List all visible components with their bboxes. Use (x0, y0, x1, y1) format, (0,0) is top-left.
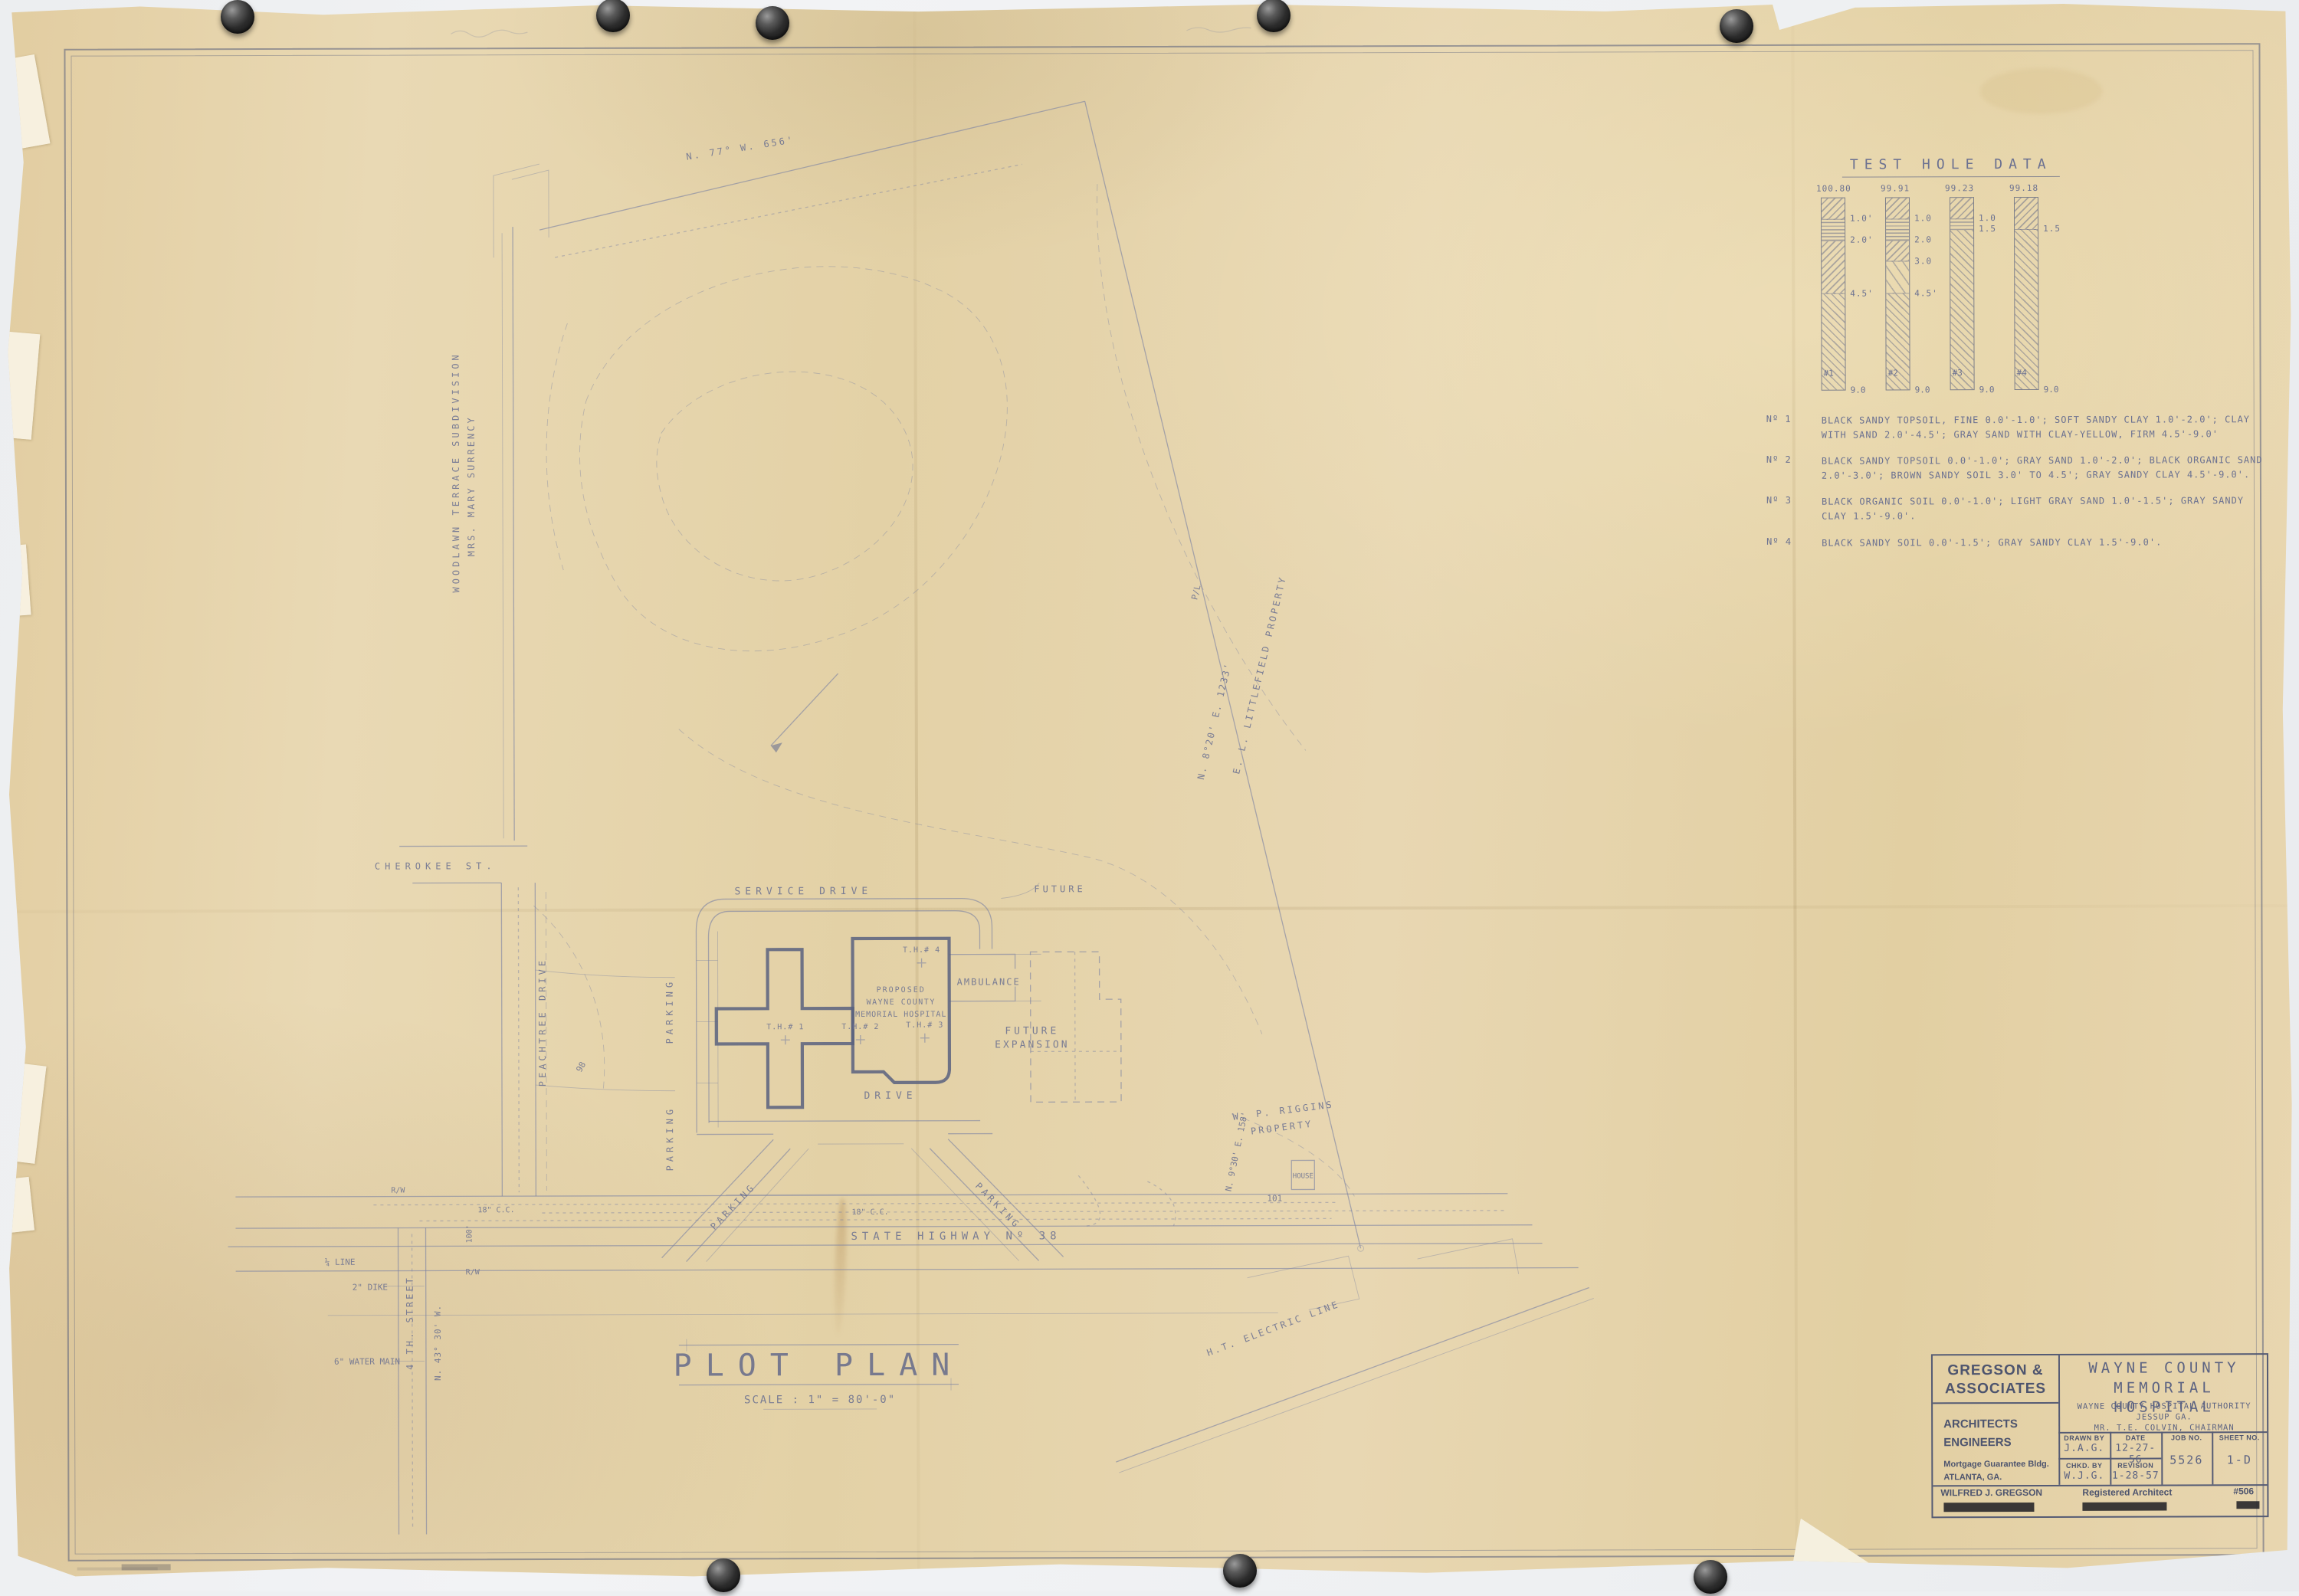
soil-stratum (1886, 262, 1909, 294)
test-hole-2-label: T.H.# 2 (841, 1023, 879, 1031)
bore-log-columns: 100.801.0'2.0'4.5'9.0#199.911.02.03.04.5… (1821, 176, 2272, 391)
parking-label-west-2: PARKING (664, 1106, 675, 1172)
soil-stratum (1950, 198, 1973, 219)
pinboard-background: SERVICE DRIVE FUTURE PROPOSED WAYNE COUN… (0, 0, 2299, 1591)
client-info: WAYNE COUNTY HOSPITAL AUTHORITY JESSUP G… (2058, 1401, 2270, 1434)
surface-elevation-label: 99.18 (2009, 183, 2038, 193)
firm-name: GREGSON & ASSOCIATES (1933, 1362, 2058, 1398)
state-highway-label: STATE HIGHWAY Nº 38 (851, 1230, 1061, 1243)
fourth-street (382, 1227, 426, 1534)
sheet-no-header: SHEET NO. (2212, 1431, 2267, 1441)
ambulance-label: AMBULANCE (957, 976, 1021, 987)
push-pin-icon (221, 0, 254, 34)
depth-mark-label: 1.0 (1979, 213, 1996, 223)
note-text: BLACK SANDY TOPSOIL 0.0'-1.0'; GRAY SAND… (1822, 453, 2266, 483)
quarter-line-label: ¼ LINE (325, 1257, 356, 1267)
soil-stratum (2015, 198, 2038, 230)
parking-label-west-1: PARKING (664, 978, 675, 1044)
firm-name-line1: GREGSON & (1933, 1362, 2058, 1380)
bearing-fourth-label: N. 43° 30' W. (433, 1305, 443, 1381)
test-hole-note: Nº 1BLACK SANDY TOPSOIL, FINE 0.0'-1.0';… (1766, 412, 2272, 442)
job-no-header: JOB NO. (2161, 1431, 2212, 1441)
dike-label: 2" DIKE (353, 1283, 388, 1293)
redacted-registered-title (2082, 1503, 2166, 1511)
future-expansion-label-1: FUTURE (1005, 1025, 1059, 1037)
test-hole-column: 100.801.0'2.0'4.5'9.0#1 (1821, 198, 1846, 391)
note-label: Nº 1 (1766, 414, 1806, 442)
push-pin-icon (1257, 0, 1291, 32)
fourth-street-label: 4 TH. STREET (405, 1276, 415, 1370)
soil-stratum (1886, 198, 1909, 219)
depth-mark-label: 1.0' (1850, 214, 1874, 224)
job-no-value: 5526 (2161, 1453, 2212, 1467)
soil-stratum (1950, 219, 1973, 230)
building-label-3: MEMORIAL HOSPITAL (855, 1011, 946, 1019)
firm-address-line2: ATLANTA, GA. (1943, 1470, 2058, 1483)
depth-mark-label: 1.5 (2043, 224, 2061, 234)
water-main-label: 6" WATER MAIN (334, 1357, 400, 1367)
riggins-label-2: PROPERTY (1250, 1119, 1313, 1137)
push-pin-icon (1223, 1554, 1257, 1588)
blueprint-sheet: SERVICE DRIVE FUTURE PROPOSED WAYNE COUN… (2, 0, 2296, 1585)
redacted-architect-name (1943, 1503, 2034, 1512)
peachtree-drive (501, 883, 675, 1197)
firm-roles: ARCHITECTS ENGINEERS (1943, 1415, 2058, 1452)
service-drive-label: SERVICE DRIVE (734, 886, 872, 897)
bore-log-bar (1950, 197, 1975, 390)
plot-plan-scale: SCALE : 1" = 80'-0" (744, 1394, 896, 1407)
project-name-line1: WAYNE COUNTY (2058, 1358, 2270, 1378)
push-pin-icon (756, 6, 789, 40)
soil-stratum (1886, 219, 1909, 241)
sheet-no-value: 1-D (2212, 1453, 2267, 1467)
woodlawn-label-2: MRS. MARY SURRENCY (466, 415, 477, 556)
bearing-riggins-label: N. 9°30' E. 158' (1224, 1111, 1250, 1192)
building-label-1: PROPOSED (877, 986, 926, 995)
north-arrow (771, 673, 838, 752)
contour-101-label: 101 (1267, 1194, 1282, 1204)
firm-role-architects: ARCHITECTS (1943, 1415, 2058, 1434)
state-highway (228, 1175, 1578, 1316)
parking-label-entry-left: PARKING (708, 1181, 758, 1231)
test-hole-note: Nº 3BLACK ORGANIC SOIL 0.0'-1.0'; LIGHT … (1766, 494, 2272, 524)
test-hole-data-panel: TEST HOLE DATA 100.801.0'2.0'4.5'9.0#199… (1766, 156, 2272, 562)
right-of-way-label-1: R/W (391, 1187, 405, 1195)
plot-plan-title-group: PLOT PLAN SCALE : 1" = 80'-0" (673, 1339, 963, 1410)
bottom-depth-label: 9.0 (2044, 385, 2059, 395)
note-text: BLACK SANDY TOPSOIL, FINE 0.0'-1.0'; SOF… (1822, 412, 2266, 442)
test-hole-notes: Nº 1BLACK SANDY TOPSOIL, FINE 0.0'-1.0';… (1766, 412, 2272, 550)
littlefield-label: E. L. LITTLEFIELD PROPERTY (1231, 575, 1288, 775)
test-hole-column: 99.181.59.0#4 (2014, 197, 2039, 390)
ht-electric-line (1116, 1238, 1595, 1473)
parking-label-entry-right: PARKING (973, 1181, 1023, 1231)
push-pin-icon (1720, 9, 1753, 43)
test-hole-1-label: T.H.# 1 (766, 1023, 804, 1031)
firm-address: Mortgage Guarantee Bldg. ATLANTA, GA. (1943, 1458, 2058, 1483)
soil-stratum (1886, 241, 1909, 262)
surface-elevation-label: 99.23 (1945, 183, 1974, 193)
future-label: FUTURE (1034, 883, 1085, 894)
hole-number-label: #4 (2017, 368, 2027, 378)
client-line2: JESSUP GA. (2058, 1411, 2270, 1423)
contour-lines (532, 183, 1354, 1198)
depth-mark-label: 2.0' (1850, 235, 1874, 245)
depth-mark-label: 4.5' (1850, 289, 1874, 299)
bore-log-bar (2014, 197, 2039, 390)
push-pin-icon (596, 0, 630, 32)
test-hole-note: Nº 4BLACK SANDY SOIL 0.0'-1.5'; GRAY SAN… (1766, 535, 2272, 550)
depth-mark-label: 2.0 (1914, 234, 1932, 244)
chkd-by-header: CHKD. BY (2058, 1460, 2110, 1470)
note-text: BLACK ORGANIC SOIL 0.0'-1.0'; LIGHT GRAY… (1822, 494, 2266, 524)
soil-stratum (1822, 241, 1845, 294)
hole-number-label: #2 (1888, 368, 1898, 378)
surface-elevation-label: 99.91 (1881, 183, 1910, 193)
torn-edge-patch (0, 545, 31, 618)
revision-header: REVISION (2110, 1460, 2161, 1470)
cherokee-st-label: CHEROKEE ST. (375, 860, 497, 871)
drawn-by-header: DRAWN BY (2058, 1432, 2110, 1442)
depth-mark-label: 4.5' (1914, 288, 1938, 298)
building-label-2: WAYNE COUNTY (867, 998, 936, 1007)
hole-number-label: #1 (1824, 369, 1834, 379)
note-label: Nº 3 (1766, 495, 1806, 523)
soil-stratum (1822, 219, 1845, 241)
bottom-depth-label: 9.0 (1851, 385, 1866, 395)
firm-role-engineers: ENGINEERS (1943, 1434, 2058, 1452)
bearing-top-label: N. 77° W. 656' (685, 134, 795, 162)
push-pin-icon (707, 1558, 740, 1592)
drive-label: DRIVE (864, 1090, 917, 1102)
chkd-by-value: W.J.G. (2058, 1470, 2110, 1482)
torn-edge-patch (0, 1177, 34, 1234)
test-hole-data-title: TEST HOLE DATA (1842, 156, 2060, 178)
property-boundary (494, 100, 1364, 1254)
pencil-scribble (451, 30, 527, 37)
title-block-divider (1933, 1402, 2058, 1404)
woodlawn-label-1: WOODLAWN TERRACE SUBDIVISION (450, 352, 461, 592)
soil-stratum (1950, 230, 1974, 389)
registration-number: #506 (2233, 1486, 2267, 1496)
pencil-scribble (1186, 28, 1251, 32)
peachtree-drive-label: PEACHTREE DRIVE (537, 958, 548, 1086)
note-text: BLACK SANDY SOIL 0.0'-1.5'; GRAY SANDY C… (1822, 535, 2162, 550)
date-header: DATE (2110, 1432, 2161, 1442)
bore-log-bar (1885, 197, 1910, 390)
client-line1: WAYNE COUNTY HOSPITAL AUTHORITY (2058, 1401, 2270, 1412)
bottom-depth-label: 9.0 (1915, 385, 1930, 395)
entrance-drives (661, 1139, 1063, 1261)
redacted-registration-number (2236, 1501, 2259, 1509)
firm-name-line2: ASSOCIATES (1933, 1380, 2058, 1398)
test-hole-column: 99.911.02.03.04.5'9.0#2 (1885, 197, 1910, 390)
hole-number-label: #3 (1953, 368, 1963, 378)
contour-98-label: 98 (574, 1060, 588, 1073)
architect-name: WILFRED J. GREGSON (1940, 1487, 2078, 1498)
registered-architect-title: Registered Architect (2082, 1486, 2182, 1497)
cc18-label-2: 18" C.C. (851, 1208, 888, 1217)
test-hole-4-label: T.H.# 4 (903, 946, 940, 955)
test-hole-note: Nº 2BLACK SANDY TOPSOIL 0.0'-1.0'; GRAY … (1766, 453, 2272, 483)
soil-stratum (2015, 230, 2038, 389)
title-block: GREGSON & ASSOCIATES ARCHITECTS ENGINEER… (1931, 1353, 2269, 1518)
plot-plan-title: PLOT PLAN (674, 1348, 964, 1384)
depth-mark-label: 1.5 (1979, 224, 1996, 234)
test-hole-column: 99.231.01.59.0#3 (1950, 197, 1975, 390)
ht-electric-label: H.T. ELECTRIC LINE (1205, 1299, 1341, 1358)
depth-mark-label: 3.0 (1914, 256, 1932, 266)
house-label: HOUSE (1293, 1172, 1313, 1180)
right-of-way-label-2: R/W (466, 1268, 480, 1276)
revision-value: 1-28-57 (2110, 1470, 2161, 1482)
surface-elevation-label: 100.80 (1816, 184, 1851, 194)
push-pin-icon (1694, 1560, 1727, 1594)
note-label: Nº 4 (1766, 536, 1806, 550)
test-hole-3-label: T.H.# 3 (906, 1021, 943, 1030)
dim-100-label: 100' (465, 1224, 474, 1243)
bore-log-bar (1821, 198, 1846, 391)
firm-address-line1: Mortgage Guarantee Bldg. (1943, 1458, 2058, 1471)
depth-mark-label: 1.0 (1914, 213, 1932, 223)
bearing-right-label: N. 8°20' E. 1233' (1195, 661, 1234, 781)
note-label: Nº 2 (1766, 454, 1806, 483)
soil-stratum (1822, 198, 1845, 220)
bottom-depth-label: 9.0 (1979, 385, 1995, 395)
future-expansion-label-2: EXPANSION (995, 1039, 1069, 1050)
property-line-label: P/L (1189, 583, 1202, 601)
cc18-label-1: 18" C.C. (477, 1206, 514, 1214)
drawn-by-value: J.A.G. (2058, 1443, 2110, 1454)
